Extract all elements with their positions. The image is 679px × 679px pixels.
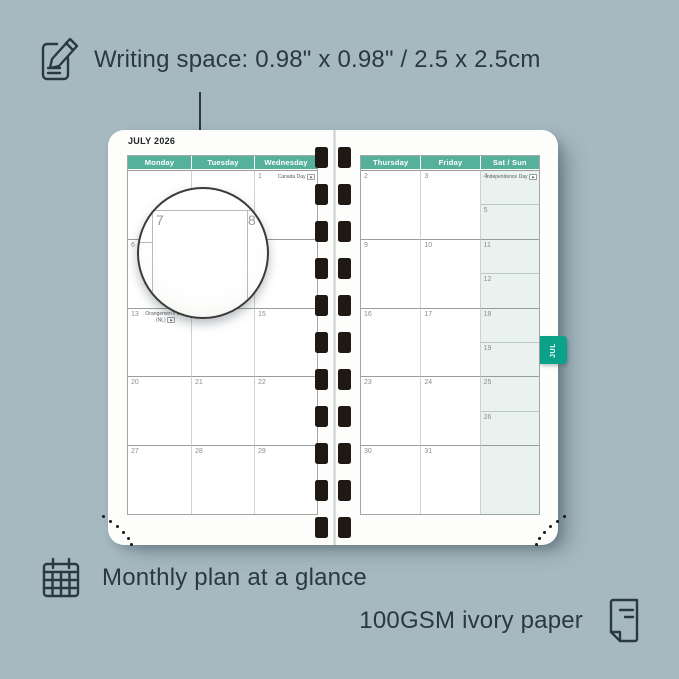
- calendar-cell: 26: [481, 411, 539, 445]
- calendar-cell: 5: [481, 204, 539, 238]
- date-number: 9: [364, 242, 368, 249]
- paper-text: 100GSM ivory paper: [359, 607, 583, 635]
- calendar-grid-icon: [40, 556, 82, 600]
- calendar-cell: 28: [191, 445, 254, 514]
- flag-icon: ⚑: [307, 174, 315, 180]
- writing-space-text: Writing space: 0.98" x 0.98" / 2.5 x 2.5…: [94, 46, 541, 74]
- holiday-text: Independence Day: [486, 174, 528, 180]
- stitch-dot: [122, 531, 125, 534]
- stitch-dot: [538, 537, 541, 540]
- date-number: 26: [484, 414, 492, 421]
- date-number: 30: [364, 448, 372, 455]
- date-number: 15: [258, 311, 266, 318]
- weekday-header: Tuesday: [191, 156, 254, 170]
- calendar-cell: 12: [481, 273, 539, 307]
- calendar-cell: 25: [481, 377, 539, 410]
- date-number: 20: [131, 379, 139, 386]
- stitch-dot: [556, 520, 559, 523]
- date-number: 27: [131, 448, 139, 455]
- date-number: 13: [131, 311, 139, 318]
- date-number: 3: [424, 173, 428, 180]
- date-number: 19: [484, 345, 492, 352]
- weekday-header: Friday: [420, 156, 479, 170]
- stitch-dot: [543, 531, 546, 534]
- calendar-cell: 4Independence Day ⚑: [481, 171, 539, 204]
- holiday-label: Independence Day ⚑: [486, 174, 537, 180]
- date-number: 2: [364, 173, 368, 180]
- date-number: 5: [484, 207, 488, 214]
- calendar-cell: 31: [420, 445, 479, 514]
- calendar-cell: 23: [361, 376, 420, 445]
- calendar-cell: [481, 446, 539, 514]
- weekend-cell: 1819: [480, 308, 539, 377]
- month-tab-label: JUL: [550, 343, 557, 358]
- binding-hole-icon: [338, 184, 351, 205]
- flag-icon: ⚑: [167, 317, 175, 323]
- calendar-cell: 22: [254, 376, 317, 445]
- binding-hole-icon: [338, 295, 351, 316]
- magnified-cell-view: 7 8: [139, 189, 267, 317]
- month-title: JULY 2026: [128, 136, 175, 146]
- calendar-cell: 24: [420, 376, 479, 445]
- date-number: 31: [424, 448, 432, 455]
- calendar-cell: 2: [361, 170, 420, 239]
- month-tab: JUL: [540, 336, 567, 364]
- grid-line: [152, 210, 153, 317]
- writing-space-caption: Writing space: 0.98" x 0.98" / 2.5 x 2.5…: [38, 36, 541, 83]
- stitch-dot: [563, 515, 566, 518]
- date-number: 12: [484, 276, 492, 283]
- date-number: 28: [195, 448, 203, 455]
- grid-line: [144, 210, 263, 211]
- stitch-dot: [549, 525, 552, 528]
- page-seam: [333, 130, 336, 545]
- calendar-cell: 11: [481, 240, 539, 273]
- binding-hole-icon: [338, 517, 351, 538]
- calendar-cell: 19: [481, 342, 539, 376]
- binding-hole-icon: [338, 258, 351, 279]
- holiday-text: Canada Day: [278, 174, 306, 180]
- date-number: 21: [195, 379, 203, 386]
- calendar-cell: 20: [128, 376, 191, 445]
- monthly-plan-caption: Monthly plan at a glance: [40, 556, 367, 600]
- magnified-date-number: 7: [156, 212, 164, 228]
- date-number: 18: [484, 311, 492, 318]
- paper-caption: 100GSM ivory paper: [359, 596, 641, 646]
- stitch-dot: [116, 525, 119, 528]
- date-number: 23: [364, 379, 372, 386]
- stitch-dot: [109, 520, 112, 523]
- date-number: 17: [424, 311, 432, 318]
- stitch-dot: [535, 543, 538, 546]
- document-icon: [605, 596, 641, 646]
- date-number: 24: [424, 379, 432, 386]
- weekend-cell: 1112: [480, 239, 539, 308]
- note-pencil-icon: [38, 36, 82, 83]
- magnifier-circle: 7 8: [137, 187, 269, 319]
- weekday-header: Monday: [128, 156, 191, 170]
- weekday-header: Thursday: [361, 156, 420, 170]
- binding-hole-icon: [338, 480, 351, 501]
- date-number: 6: [131, 242, 135, 249]
- date-number: 11: [484, 242, 491, 249]
- calendar-cell: 27: [128, 445, 191, 514]
- calendar-cell: 29: [254, 445, 317, 514]
- calendar-cell: 10: [420, 239, 479, 308]
- stitch-dot: [102, 515, 105, 518]
- date-number: 29: [258, 448, 266, 455]
- binding-hole-icon: [338, 369, 351, 390]
- calendar-cell: 13Orangemen's Day (NL) ⚑: [128, 308, 191, 377]
- date-number: 22: [258, 379, 266, 386]
- date-number: 10: [424, 242, 432, 249]
- calendar-cell: 18: [481, 309, 539, 342]
- calendar-cell: 3: [420, 170, 479, 239]
- calendar-cell: 9: [361, 239, 420, 308]
- weekend-cell: 4Independence Day ⚑5: [480, 170, 539, 239]
- date-number: 16: [364, 311, 372, 318]
- binding-hole-icon: [315, 517, 328, 538]
- stitch-dot: [130, 543, 133, 546]
- flag-icon: ⚑: [529, 174, 537, 180]
- binding-hole-icon: [338, 406, 351, 427]
- weekend-cell: [480, 445, 539, 514]
- weekday-header: Wednesday: [254, 156, 317, 170]
- grid-line: [139, 242, 152, 243]
- binding-hole-icon: [338, 147, 351, 168]
- binding-hole-icon: [338, 332, 351, 353]
- weekday-header: Sat / Sun: [480, 156, 539, 170]
- monthly-plan-text: Monthly plan at a glance: [102, 564, 367, 592]
- date-number: 1: [258, 173, 262, 180]
- binding-hole-icon: [338, 221, 351, 242]
- calendar-cell: 17: [420, 308, 479, 377]
- date-number: 25: [484, 379, 492, 386]
- adjacent-date-number: 8: [248, 212, 256, 228]
- product-infographic: Writing space: 0.98" x 0.98" / 2.5 x 2.5…: [0, 0, 679, 679]
- calendar-cell: 21: [191, 376, 254, 445]
- binding-hole-icon: [338, 443, 351, 464]
- calendar-cell: 16: [361, 308, 420, 377]
- right-month-grid: ThursdayFridaySat / Sun234Independence D…: [360, 155, 540, 515]
- calendar-cell: 15: [254, 308, 317, 377]
- calendar-cell: 30: [361, 445, 420, 514]
- holiday-label: Canada Day ⚑: [278, 174, 315, 180]
- stitch-dot: [127, 537, 130, 540]
- weekend-cell: 2526: [480, 376, 539, 445]
